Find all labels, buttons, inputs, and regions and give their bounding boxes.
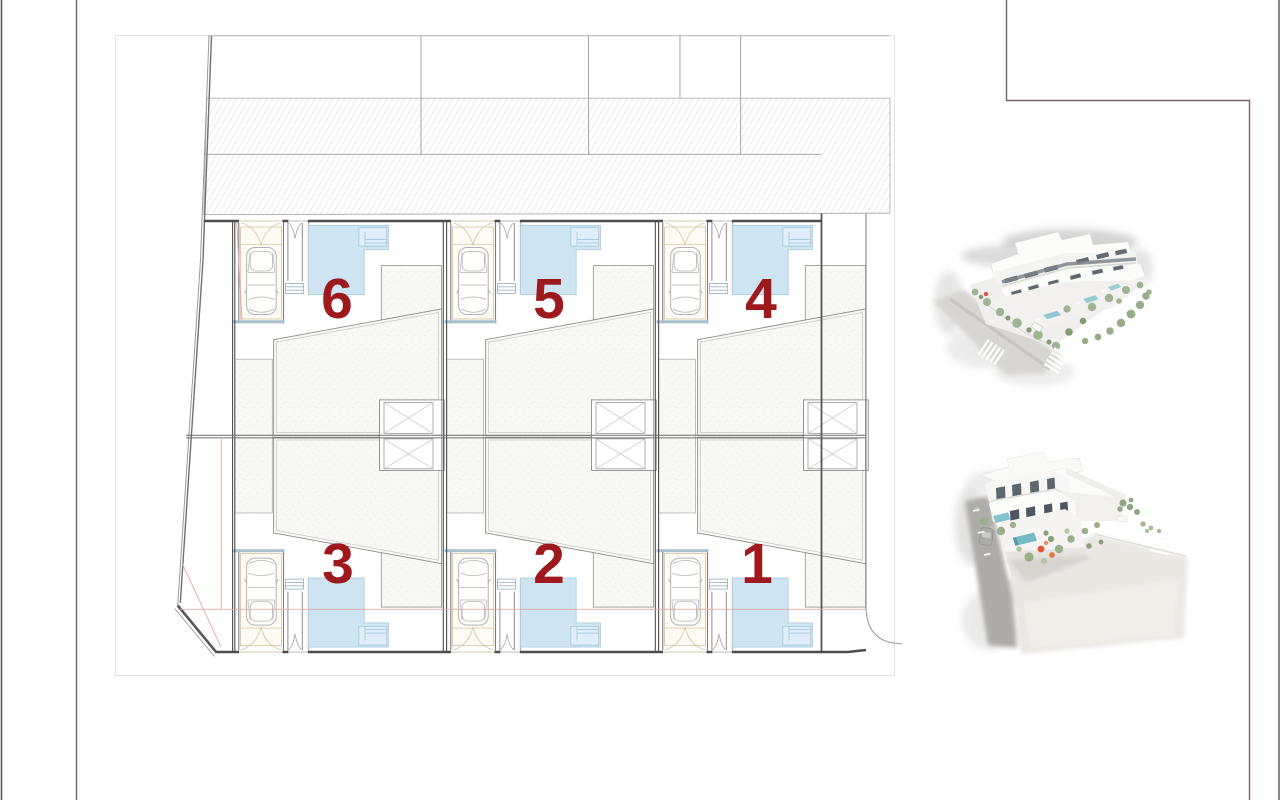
svg-text:1: 1 xyxy=(741,532,773,596)
svg-text:5: 5 xyxy=(533,267,565,331)
svg-text:4: 4 xyxy=(745,267,777,331)
svg-text:2: 2 xyxy=(533,532,565,596)
svg-text:6: 6 xyxy=(321,267,353,331)
svg-text:3: 3 xyxy=(322,532,354,596)
